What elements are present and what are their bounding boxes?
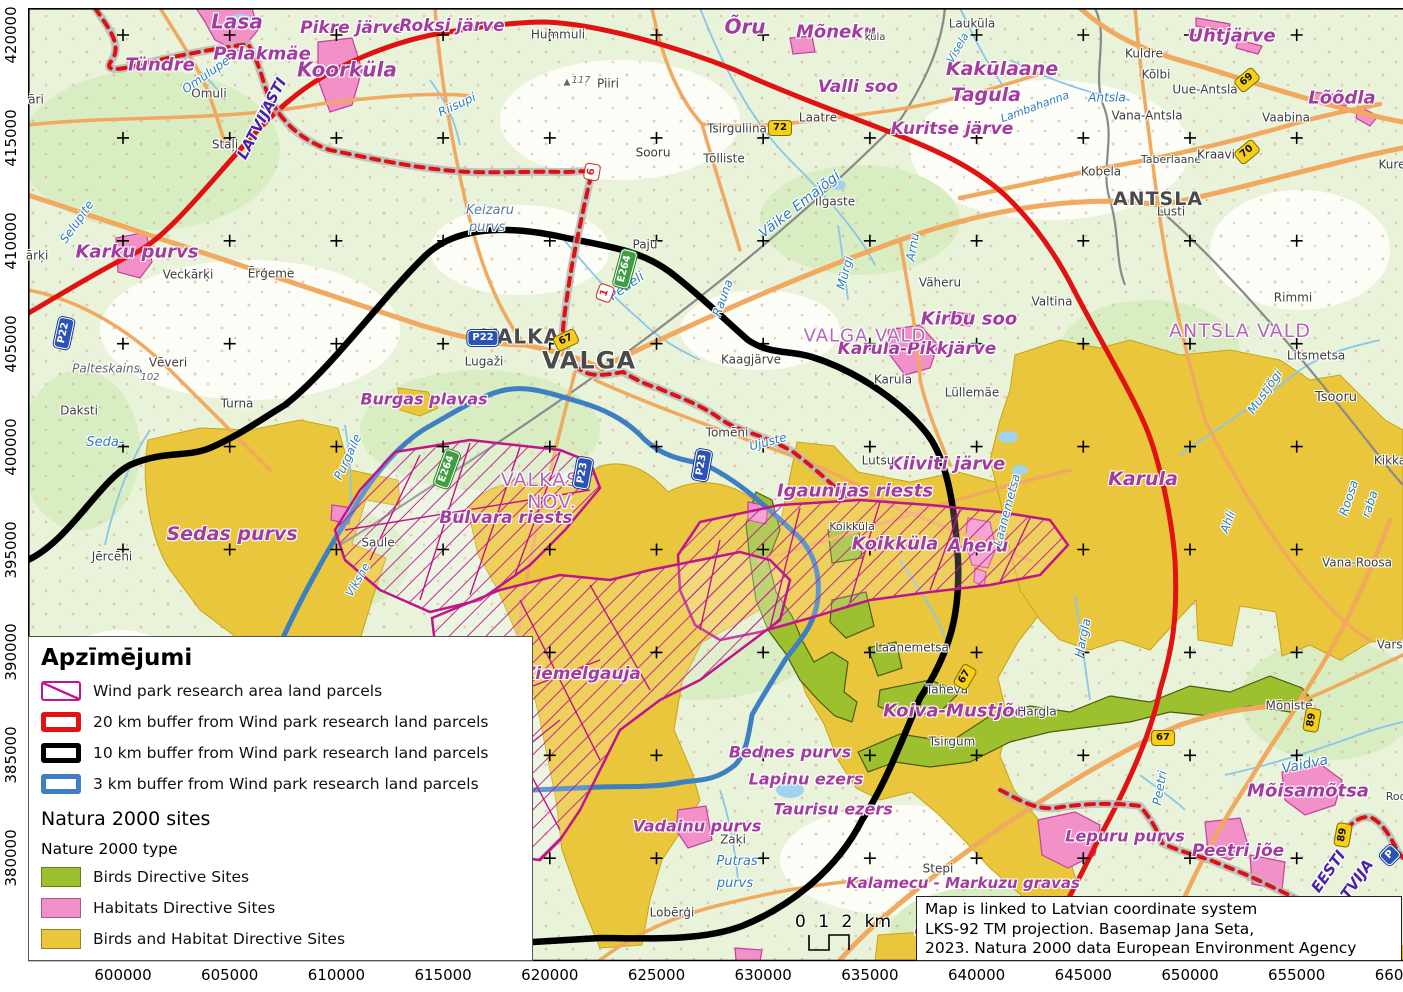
y-axis-tick-label: 380000 <box>2 830 20 887</box>
legend-item: Birds Directive Sites <box>41 867 522 887</box>
x-axis-tick-label: 605000 <box>201 966 258 984</box>
legend-item-label: 3 km buffer from Wind park research land… <box>93 775 479 793</box>
map-application: TündreLasaPikre järveRoksi järvePalakmäe… <box>0 0 1403 992</box>
x-axis-tick-label: 615000 <box>414 966 471 984</box>
buffer-swatch-icon <box>41 712 81 732</box>
legend-item-label: Birds and Habitat Directive Sites <box>93 930 345 948</box>
x-axis-tick-label: 640000 <box>948 966 1005 984</box>
legend-item-label: 10 km buffer from Wind park research lan… <box>93 744 489 762</box>
buffer-swatch-icon <box>41 774 81 794</box>
natura-swatch-icon <box>41 929 81 949</box>
info-box-line: LKS-92 TM projection. Basemap Jana Seta, <box>925 920 1393 940</box>
legend-natura-title: Natura 2000 sites <box>41 808 522 830</box>
x-axis-tick-label: 610000 <box>308 966 365 984</box>
buffer-swatch-icon <box>41 743 81 763</box>
legend-natura-items: Birds Directive SitesHabitats Directive … <box>41 867 522 949</box>
hatch-swatch-icon <box>41 681 81 701</box>
legend-item-label: Birds Directive Sites <box>93 868 249 886</box>
x-axis-tick-label: 600000 <box>94 966 151 984</box>
legend-natura-subtitle: Nature 2000 type <box>41 840 522 858</box>
y-axis-tick-label: 390000 <box>2 624 20 681</box>
natura-swatch-icon <box>41 898 81 918</box>
legend-panel: Apzīmējumi Wind park research area land … <box>28 636 533 961</box>
y-axis-tick-label: 395000 <box>2 521 20 578</box>
map-info-box: Map is linked to Latvian coordinate syst… <box>916 896 1402 961</box>
legend-title: Apzīmējumi <box>41 645 522 671</box>
x-axis-tick-label: 630000 <box>735 966 792 984</box>
natura-swatch-icon <box>41 867 81 887</box>
legend-item: 10 km buffer from Wind park research lan… <box>41 743 522 763</box>
x-axis-tick-label: 625000 <box>628 966 685 984</box>
x-axis-tick-label: 655000 <box>1268 966 1325 984</box>
y-axis-tick-label: 385000 <box>2 727 20 784</box>
y-axis-tick-label: 405000 <box>2 315 20 372</box>
info-box-line: Map is linked to Latvian coordinate syst… <box>925 900 1393 920</box>
x-axis-tick-label: 650000 <box>1161 966 1218 984</box>
legend-clipped-row <box>41 960 191 961</box>
y-axis-tick-label: 415000 <box>2 109 20 166</box>
legend-item-label: Wind park research area land parcels <box>93 682 382 700</box>
x-axis-tick-label: 660000 <box>1375 966 1403 984</box>
y-axis-tick-label: 420000 <box>2 6 20 63</box>
legend-item-label: 20 km buffer from Wind park research lan… <box>93 713 489 731</box>
y-axis-tick-label: 400000 <box>2 418 20 475</box>
legend-item: Birds and Habitat Directive Sites <box>41 929 522 949</box>
x-axis-tick-label: 645000 <box>1055 966 1112 984</box>
legend-item: Wind park research area land parcels <box>41 681 522 701</box>
legend-item: Habitats Directive Sites <box>41 898 522 918</box>
x-axis-tick-label: 620000 <box>521 966 578 984</box>
y-axis-tick-label: 410000 <box>2 212 20 269</box>
info-box-line: 2023. Natura 2000 data European Environm… <box>925 939 1393 959</box>
legend-item-label: Habitats Directive Sites <box>93 899 275 917</box>
legend-item: 3 km buffer from Wind park research land… <box>41 774 522 794</box>
legend-buffer-items: Wind park research area land parcels20 k… <box>41 681 522 794</box>
x-axis-tick-label: 635000 <box>841 966 898 984</box>
legend-item: 20 km buffer from Wind park research lan… <box>41 712 522 732</box>
